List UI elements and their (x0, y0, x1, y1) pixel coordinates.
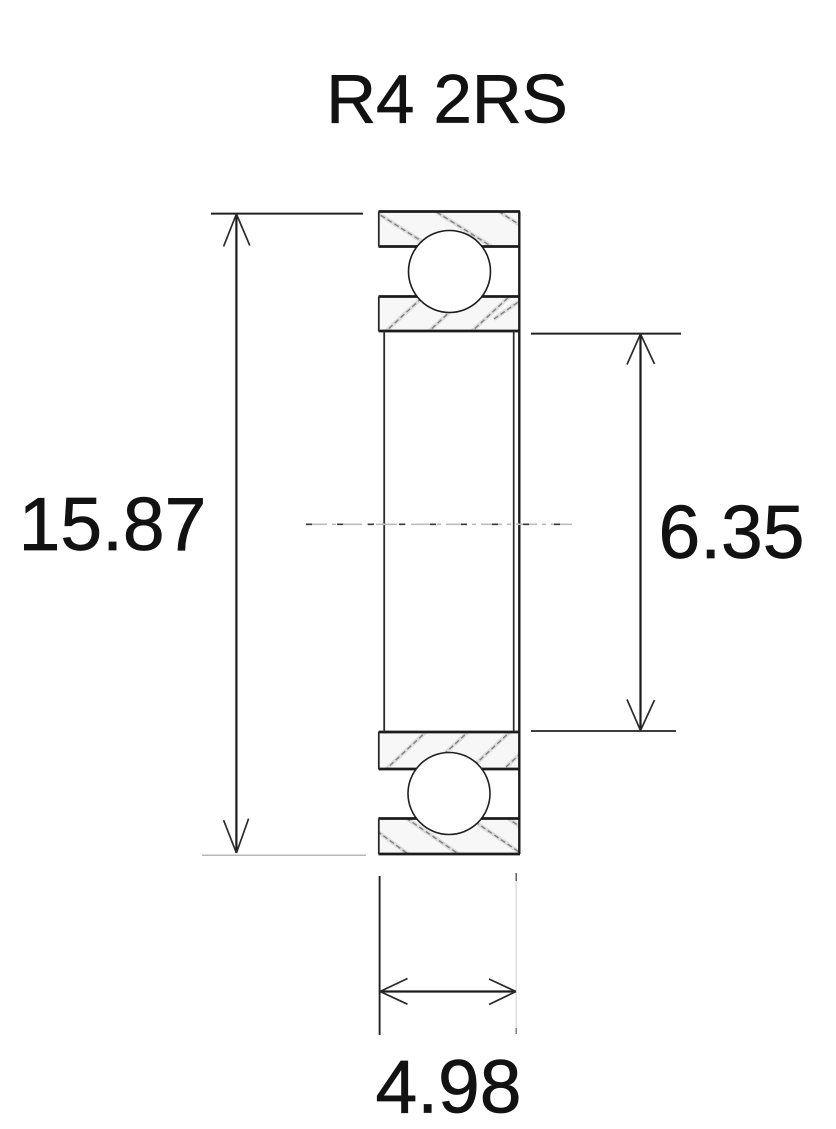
svg-text:15.87: 15.87 (19, 482, 207, 566)
svg-text:6.35: 6.35 (659, 490, 805, 574)
svg-text:R4 2RS: R4 2RS (326, 61, 568, 138)
svg-text:4.98: 4.98 (376, 1045, 522, 1129)
